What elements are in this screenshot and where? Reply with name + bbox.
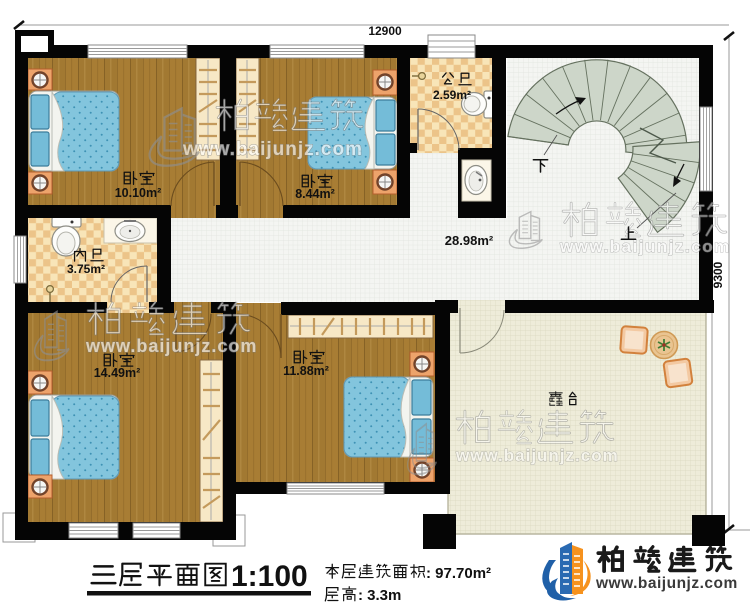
svg-text:www.baijunjz.com: www.baijunjz.com (595, 575, 738, 592)
svg-text:2.59m²: 2.59m² (433, 88, 471, 102)
svg-text:www.baijunjz.com: www.baijunjz.com (559, 237, 731, 256)
svg-text:www.baijunjz.com: www.baijunjz.com (455, 446, 619, 465)
svg-text:14.49m²: 14.49m² (94, 366, 141, 380)
svg-text:3.75m²: 3.75m² (67, 262, 105, 276)
svg-text:10.10m²: 10.10m² (115, 186, 162, 200)
svg-text:1:100: 1:100 (231, 560, 308, 593)
svg-text:8.44m²: 8.44m² (295, 187, 335, 201)
svg-text:11.88m²: 11.88m² (283, 364, 329, 378)
svg-text:: 3.3m: : 3.3m (358, 587, 401, 604)
svg-text:12900: 12900 (368, 24, 402, 38)
svg-text:www.baijunjz.com: www.baijunjz.com (182, 139, 363, 160)
svg-text:28.98m²: 28.98m² (445, 233, 494, 248)
svg-text:9300: 9300 (711, 261, 725, 288)
svg-text:: 97.70m²: : 97.70m² (426, 565, 491, 582)
svg-text:www.baijunjz.com: www.baijunjz.com (85, 336, 257, 356)
